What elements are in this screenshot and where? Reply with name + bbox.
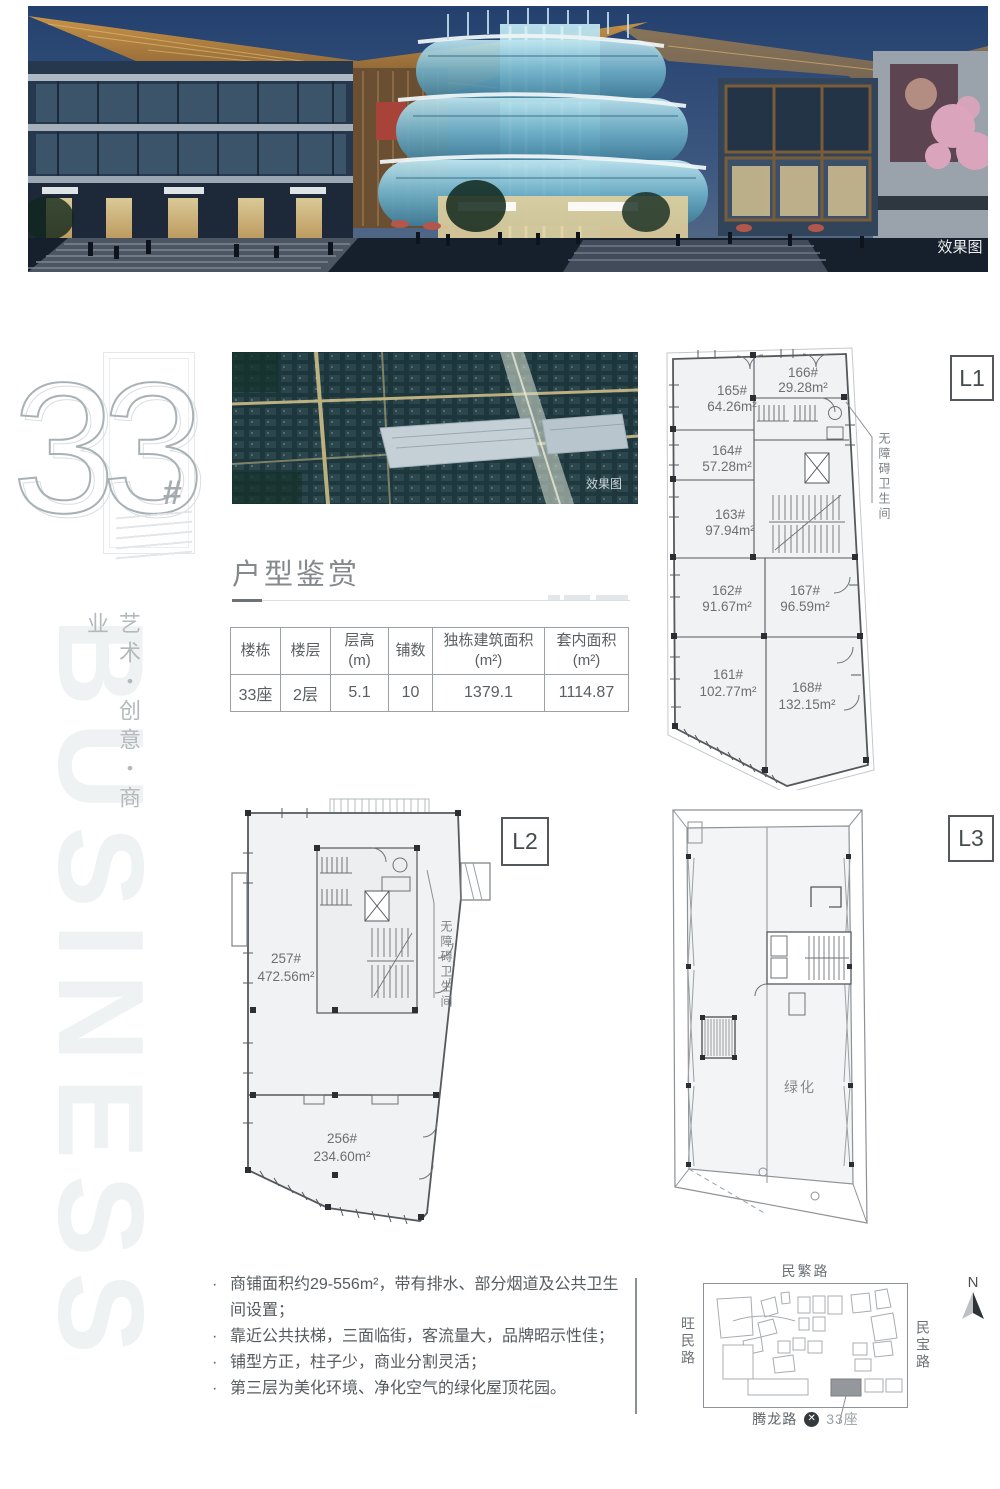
col-height: 层高(m) (331, 628, 389, 675)
vertical-slogan: 艺术・创意・商业 (80, 612, 144, 822)
map-building-label: 33座 (826, 1409, 859, 1429)
room-area: 132.15m² (778, 697, 836, 712)
logo-slats (116, 511, 192, 562)
val-building: 33座 (231, 675, 281, 712)
list-item: ·商铺面积约29-556m²，带有排水、部分烟道及公共卫生间设置； (208, 1272, 624, 1324)
room-area: 234.60m² (313, 1149, 371, 1164)
room-number: 166# (788, 365, 819, 380)
room-number: 165# (717, 383, 748, 398)
floor-plan-l1: 165# 64.26m² 166# 29.28m² 164# 57.28m² 1… (653, 345, 898, 790)
l1-accessible-wc-annotation: 无障碍卫生间 (876, 432, 893, 562)
compass-north-label: N (962, 1274, 984, 1291)
divider-line (262, 600, 630, 601)
bullet-text: 商铺面积约29-556m²，带有排水、部分烟道及公共卫生间设置； (230, 1276, 618, 1319)
brochure-page: 效果图 33 33 # BUSINESS 艺术・创意・商业 (0, 0, 1000, 1489)
vertical-divider (635, 1278, 637, 1414)
val-height: 5.1 (331, 675, 389, 712)
list-item: ·第三层为美化环境、净化空气的绿化屋顶花园。 (208, 1376, 624, 1402)
col-net-area: 套内面积(m²) (545, 628, 629, 675)
bullet-marker: · (212, 1324, 217, 1350)
spec-table-header-row: 楼栋 楼层 层高(m) 铺数 独栋建筑面积(m²) 套内面积(m²) (231, 628, 629, 675)
section-title: 户型鉴赏 (232, 551, 360, 593)
room-number: 167# (790, 583, 821, 598)
hero-watermark-label: 效果图 (937, 239, 982, 256)
room-area: 96.59m² (780, 599, 830, 614)
aerial-watermark-label: 效果图 (586, 476, 622, 491)
spec-table: 楼栋 楼层 层高(m) 铺数 独栋建筑面积(m²) 套内面积(m²) 33座 2… (230, 627, 629, 712)
metro-station-icon: ✕ (804, 1412, 819, 1427)
bullet-marker: · (212, 1376, 217, 1402)
val-gross-area: 1379.1 (433, 675, 545, 712)
divider-watermark-fragment (596, 595, 628, 600)
l2-accessible-wc-annotation: 无障碍卫生间 (438, 920, 455, 1050)
val-shops: 10 (389, 675, 433, 712)
room-area: 91.67m² (702, 599, 752, 614)
room-area: 29.28m² (778, 380, 828, 395)
val-net-area: 1114.87 (545, 675, 629, 712)
list-item: ·铺型方正，柱子少，商业分割灵活； (208, 1350, 624, 1376)
map-building-33 (831, 1379, 861, 1396)
bullet-marker: · (212, 1272, 217, 1298)
col-floor: 楼层 (281, 628, 331, 675)
floor-plan-l3: 绿化 (663, 798, 910, 1240)
room-area: 97.94m² (705, 523, 755, 538)
divider-watermark-fragment (564, 595, 590, 600)
val-floor: 2层 (281, 675, 331, 712)
map-road-bottom: 腾龙路 (752, 1409, 797, 1429)
map-road-right: 民宝路 (913, 1320, 933, 1390)
room-area: 102.77m² (699, 684, 757, 699)
selling-points-list: ·商铺面积约29-556m²，带有排水、部分烟道及公共卫生间设置； ·靠近公共扶… (208, 1272, 624, 1402)
room-area: 472.56m² (257, 969, 315, 984)
logo-hash: # (163, 474, 182, 513)
room-number: 168# (792, 680, 823, 695)
room-number: 257# (271, 951, 302, 966)
list-item: ·靠近公共扶梯，三面临街，客流量大，品牌昭示性佳； (208, 1324, 624, 1350)
map-caption: 腾龙路 ✕ 33座 (703, 1409, 908, 1429)
green-roof-label: 绿化 (784, 1079, 816, 1095)
hero-rendering-image: 效果图 (28, 6, 988, 272)
spec-table-data-row: 33座 2层 5.1 10 1379.1 1114.87 (231, 675, 629, 712)
bullet-text: 铺型方正，柱子少，商业分割灵活； (230, 1354, 486, 1371)
room-number: 163# (715, 507, 746, 522)
bullet-text: 靠近公共扶梯，三面临街，客流量大，品牌昭示性佳； (230, 1328, 614, 1345)
aerial-rendering-image: 效果图 (232, 352, 638, 504)
col-shops: 铺数 (389, 628, 433, 675)
divider-watermark-fragment (548, 595, 560, 600)
plan-label-l3: L3 (948, 815, 994, 862)
room-number: 161# (713, 667, 744, 682)
room-number: 162# (712, 583, 743, 598)
room-number: 256# (327, 1131, 358, 1146)
room-area: 64.26m² (707, 399, 757, 414)
col-building: 楼栋 (231, 628, 281, 675)
bullet-text: 第三层为美化环境、净化空气的绿化屋顶花园。 (230, 1380, 566, 1397)
plan-label-l1: L1 (950, 355, 994, 401)
map-road-left: 旺民路 (678, 1316, 698, 1386)
room-area: 57.28m² (702, 459, 752, 474)
room-number: 164# (712, 443, 743, 458)
bullet-marker: · (212, 1350, 217, 1376)
plan-label-l2: L2 (501, 817, 549, 866)
map-road-top: 民繁路 (703, 1261, 908, 1281)
col-gross-area: 独栋建筑面积(m²) (433, 628, 545, 675)
divider-accent (232, 599, 262, 602)
compass-icon (961, 1292, 985, 1320)
